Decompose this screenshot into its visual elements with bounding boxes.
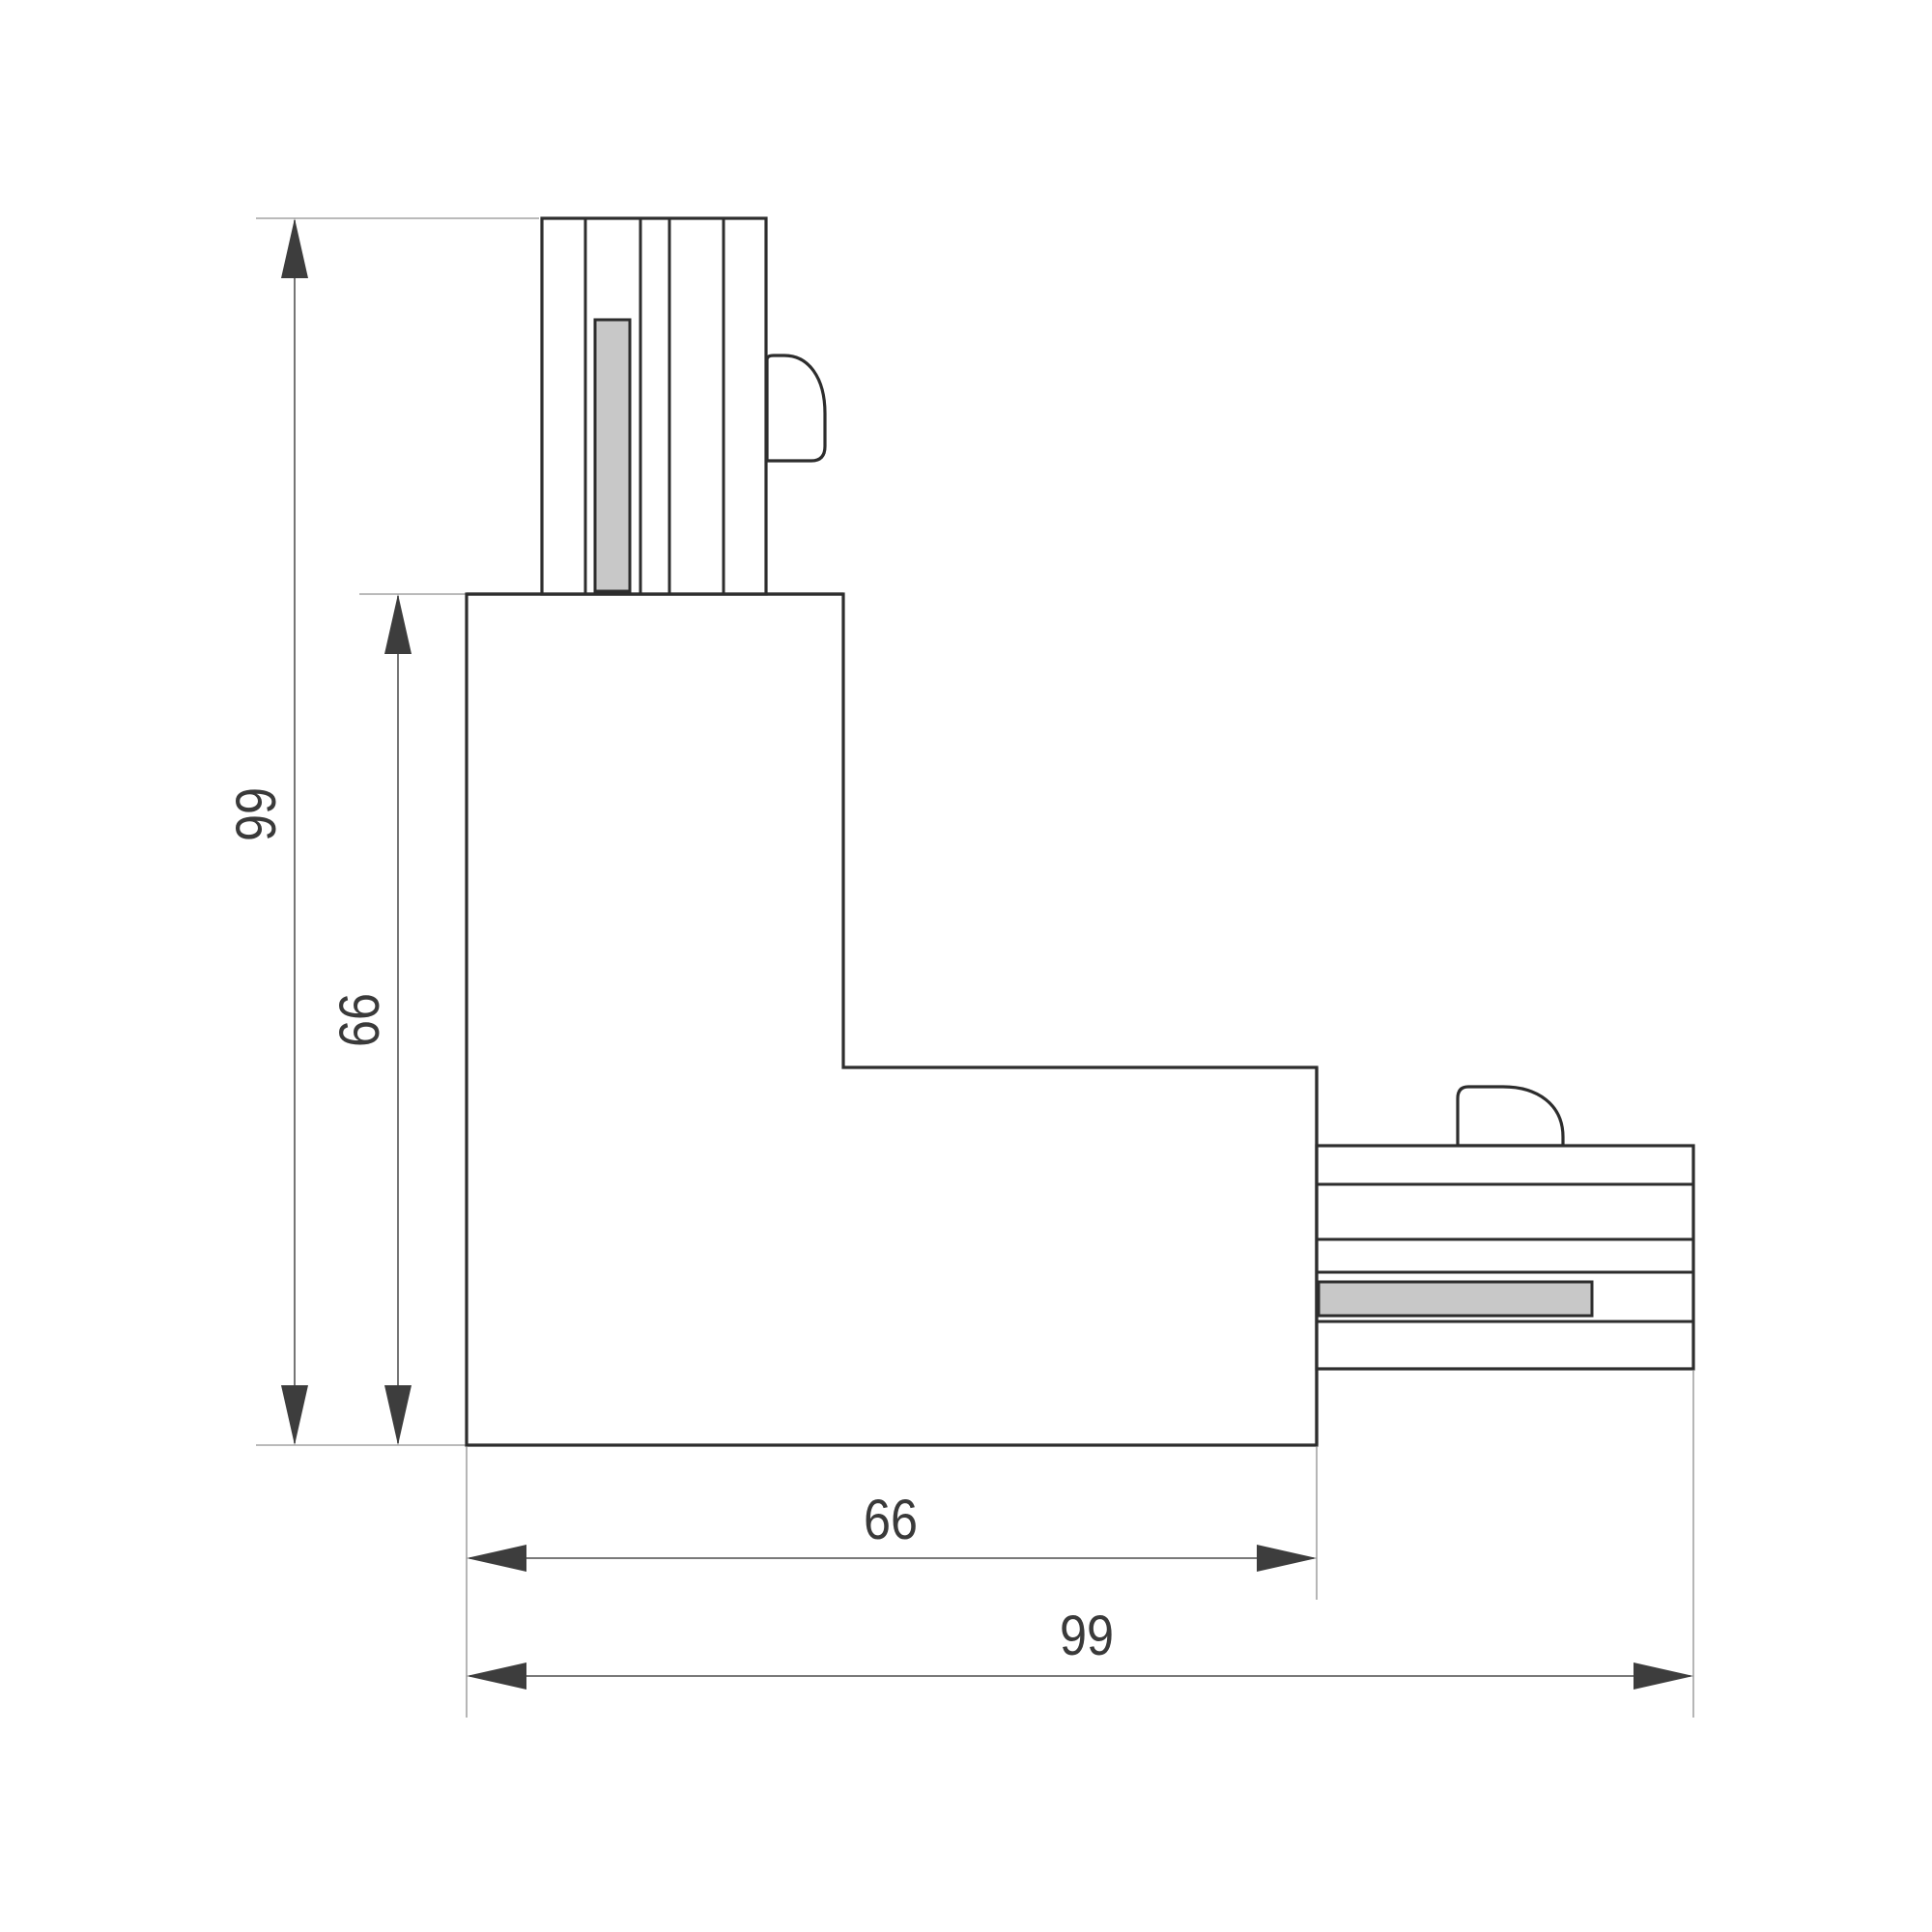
dim-label-horizontal-inner: 66 xyxy=(864,1489,918,1551)
dim-label-vertical-inner: 66 xyxy=(328,993,391,1047)
arrow-left-icon xyxy=(467,1545,526,1572)
right-plug-contact-bar xyxy=(1319,1282,1592,1316)
top-plug-latch-tab xyxy=(767,355,825,461)
right-plug-latch-tab xyxy=(1458,1087,1563,1146)
arrow-up-icon xyxy=(384,594,412,654)
dim-label-vertical-outer: 99 xyxy=(225,787,288,841)
arrow-right-icon xyxy=(1257,1545,1317,1572)
top-plug xyxy=(542,218,825,594)
connector-body-outline xyxy=(467,594,1317,1445)
top-plug-housing xyxy=(542,218,766,594)
dim-label-horizontal-outer: 99 xyxy=(1060,1605,1114,1667)
arrow-down-icon xyxy=(384,1385,412,1445)
top-plug-contact-bar xyxy=(595,320,630,591)
arrow-left-icon xyxy=(467,1662,526,1690)
right-plug-housing xyxy=(1317,1146,1693,1369)
arrow-down-icon xyxy=(281,1385,308,1445)
arrow-right-icon xyxy=(1634,1662,1693,1690)
right-plug xyxy=(1317,1087,1693,1369)
technical-drawing: 99 66 66 99 xyxy=(0,0,1932,1932)
arrow-up-icon xyxy=(281,218,308,278)
